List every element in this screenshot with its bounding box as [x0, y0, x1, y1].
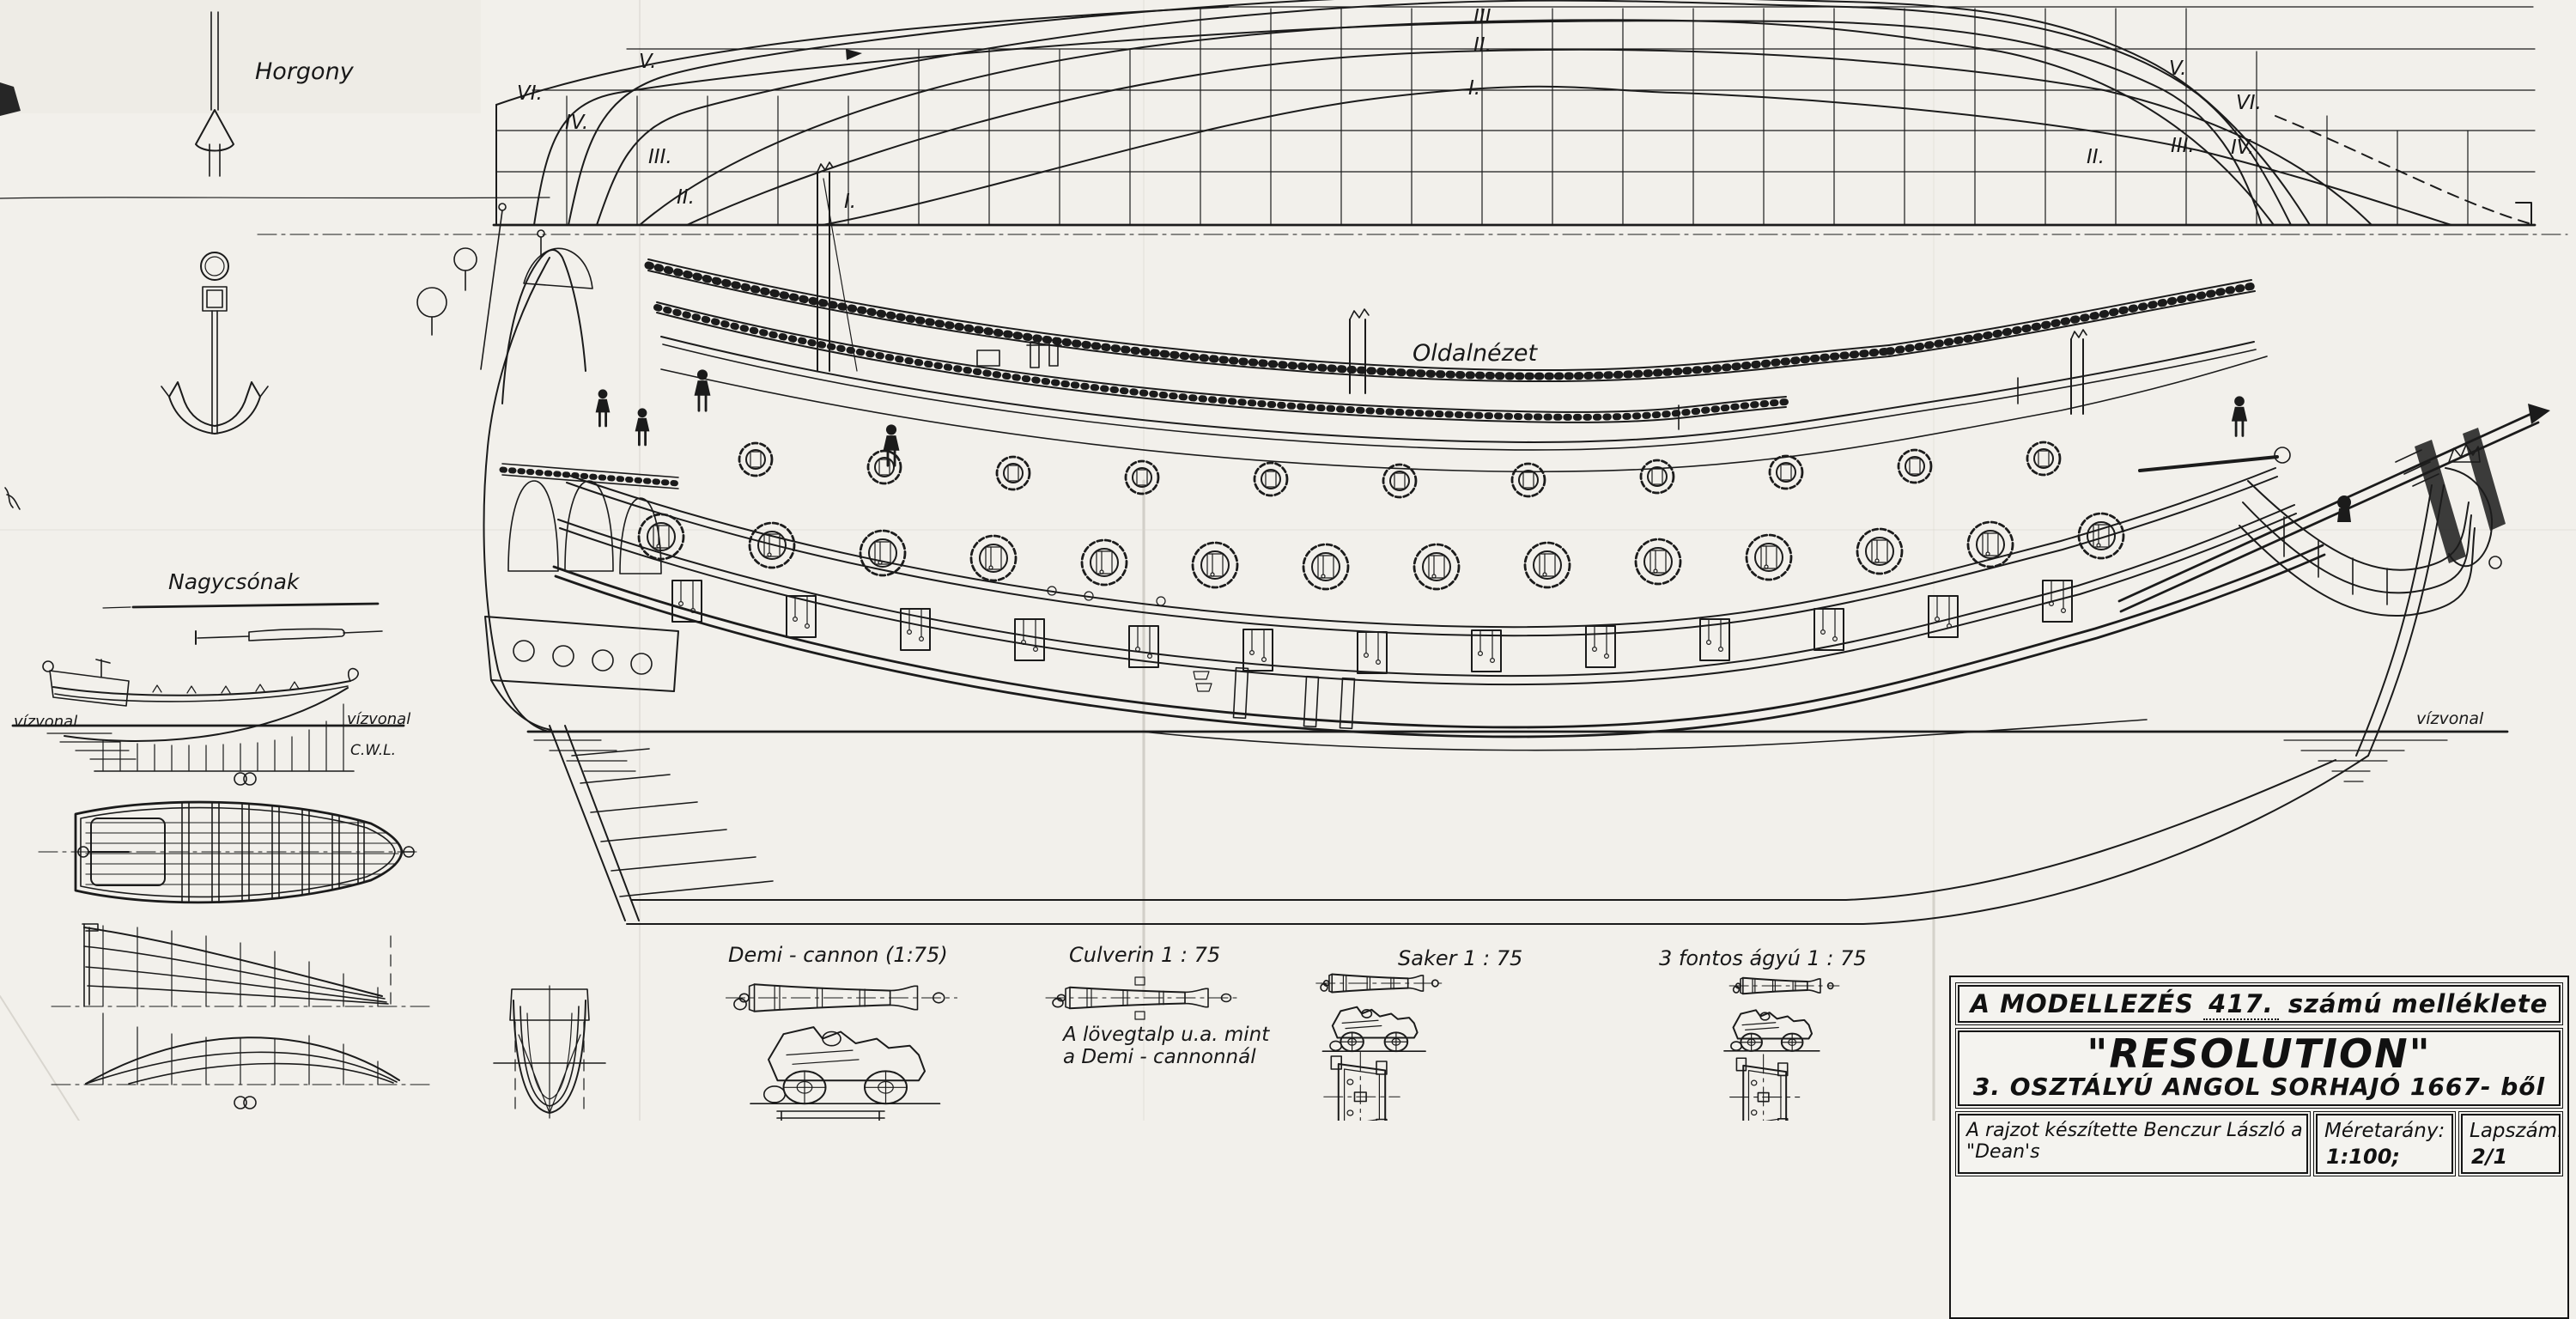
- station-label: II.: [2087, 146, 2105, 168]
- paper-artifacts: [0, 0, 2576, 1121]
- longboat-sheer-lines: [52, 924, 429, 1006]
- bow-beakhead: [2119, 404, 2550, 616]
- cwl-label: C.W.L.: [350, 742, 396, 759]
- lines-plan: VI. V. IV. III. II. I. III. II. I. II. I…: [258, 0, 2567, 234]
- stern-lantern: [417, 288, 447, 317]
- station-label: III.: [2171, 135, 2195, 157]
- ground-line: [0, 198, 550, 198]
- waterline-label: vízvonal: [347, 710, 410, 728]
- gallery-window: [565, 481, 613, 571]
- station-label: II.: [1473, 34, 1492, 57]
- station-label: I.: [844, 191, 856, 213]
- station-label: II.: [677, 186, 695, 209]
- title-block: A MODELLEZÉS 417. számú melléklete "RESO…: [1949, 976, 2569, 1319]
- cannon-label: 3 fontos ágyú 1 : 75: [1659, 946, 1867, 970]
- stern-lantern: [454, 248, 477, 270]
- waterline-curve-1: [823, 87, 2451, 225]
- bowsprit-tip: [2528, 404, 2550, 424]
- main-mast-stub: [1350, 309, 1369, 393]
- cathead: [2140, 457, 2277, 471]
- cannon-label: Saker 1 : 75: [1398, 946, 1522, 970]
- station-label: IV.: [2231, 137, 2254, 159]
- longboat-side-view: vízvonal vízvonal C.W.L.: [13, 659, 410, 771]
- credit-text: A rajzot készítette Benczur László a "De…: [1966, 1120, 2303, 1163]
- station-label: V.: [2169, 58, 2186, 80]
- oar-1: [133, 604, 378, 607]
- series-suffix: számú melléklete: [2288, 989, 2549, 1018]
- ship-name: "RESOLUTION": [1959, 1034, 2559, 1073]
- blueprint-page: { "labels": { "anchor": "Horgony", "long…: [0, 0, 2576, 1121]
- entry-steps: [1194, 672, 1212, 691]
- ship-title: "RESOLUTION" 3. OSZTÁLYÚ ANGOL SORHAJÓ 1…: [1958, 1030, 2561, 1106]
- longboat-body-section: [494, 986, 605, 1118]
- series-number: 417.: [2203, 989, 2279, 1020]
- station-label: I.: [1468, 77, 1480, 100]
- longboat-drawings: Nagycsónak vízvonal vízvonal C.W.L.: [13, 569, 605, 1118]
- side-view-label: Oldalnézet: [1413, 340, 1538, 367]
- cannon-label: Culverin 1 : 75: [1069, 943, 1220, 967]
- series-prefix: A MODELLEZÉS: [1971, 989, 2194, 1018]
- blueprint-drawing: VI. V. IV. III. II. I. III. II. I. II. I…: [0, 0, 2576, 1121]
- carriage-note: a Demi - cannonnál: [1063, 1046, 1256, 1068]
- station-label: III.: [648, 146, 672, 168]
- sheet-value: 2/1: [2471, 1145, 2507, 1169]
- credit-cell: A rajzot készítette Benczur László a "De…: [1958, 1114, 2308, 1174]
- cannon-3pdr: 3 fontos ágyú 1 : 75: [1659, 946, 1867, 1121]
- ship-subtitle: 3. OSZTÁLYÚ ANGOL SORHAJÓ 1667- ből: [1959, 1073, 2559, 1101]
- edge-scribble: [5, 488, 20, 509]
- head-rail: [2239, 526, 2475, 616]
- station-label: VI.: [2236, 92, 2262, 114]
- series-line: A MODELLEZÉS 417. számú melléklete: [1958, 985, 2561, 1023]
- scale-value: 1:100; 1:75: [2326, 1145, 2451, 1174]
- anchor-arms: [169, 382, 260, 434]
- gammon-lashing: [2463, 428, 2506, 531]
- ship-side-view: Oldalnézet vízvonal: [417, 162, 2550, 924]
- station-label: VI.: [517, 82, 543, 105]
- waterline-label: vízvonal: [14, 713, 77, 731]
- sheet-label: Lapszám:: [2470, 1120, 2561, 1142]
- dashed-curve: [2275, 116, 2529, 223]
- sheet-cell: Lapszám: 2/1: [2461, 1114, 2561, 1174]
- waterline-label: vízvonal: [2416, 709, 2484, 728]
- anchor-label: Horgony: [255, 58, 355, 85]
- longboat-plan-view: [39, 773, 416, 903]
- cannon-demi: Demi - cannon (1:75): [726, 943, 957, 1121]
- curve-arrow: [846, 49, 862, 60]
- cannon-label: Demi - cannon (1:75): [728, 943, 948, 967]
- station-label: III.: [1473, 6, 1498, 28]
- cannon-culverin: Culverin 1 : 75 A lövegtalp u.a. mint a …: [1046, 943, 1270, 1068]
- longboat-halfbreadth: [52, 1013, 429, 1109]
- oar-2: [197, 631, 382, 638]
- helmeted-figure: [2337, 495, 2351, 509]
- fore-mast-stub: [2071, 330, 2087, 414]
- longboat-label: Nagycsónak: [168, 569, 301, 594]
- carriage-note: A lövegtalp u.a. mint: [1061, 1024, 1270, 1046]
- station-label: V.: [639, 51, 656, 73]
- keel-upper: [631, 760, 2336, 900]
- gallery-window: [508, 481, 558, 571]
- scale-label: Méretarány:: [2324, 1120, 2445, 1142]
- keel-lower: [627, 756, 2368, 924]
- station-label: IV.: [565, 112, 588, 134]
- sternpost: [550, 726, 639, 921]
- cannon-saker: Saker 1 : 75: [1316, 946, 1523, 1121]
- scale-cell: Méretarány: 1:100; 1:75: [2316, 1114, 2453, 1174]
